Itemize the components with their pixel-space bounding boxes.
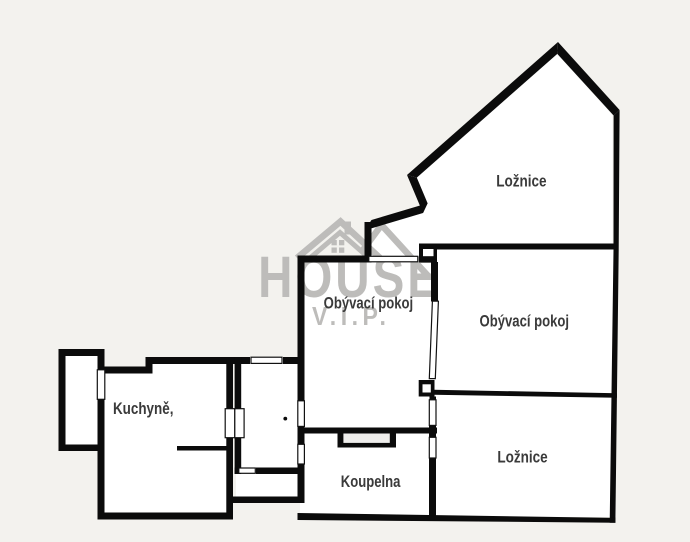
svg-text:Kuchyně,: Kuchyně, (113, 400, 173, 419)
svg-text:Ložnice: Ložnice (497, 448, 547, 467)
svg-text:Koupelna: Koupelna (341, 472, 401, 491)
svg-text:Ložnice: Ložnice (496, 172, 546, 191)
svg-text:Obývací pokoj: Obývací pokoj (324, 294, 414, 313)
svg-text:Obývací pokoj: Obývací pokoj (480, 312, 570, 331)
